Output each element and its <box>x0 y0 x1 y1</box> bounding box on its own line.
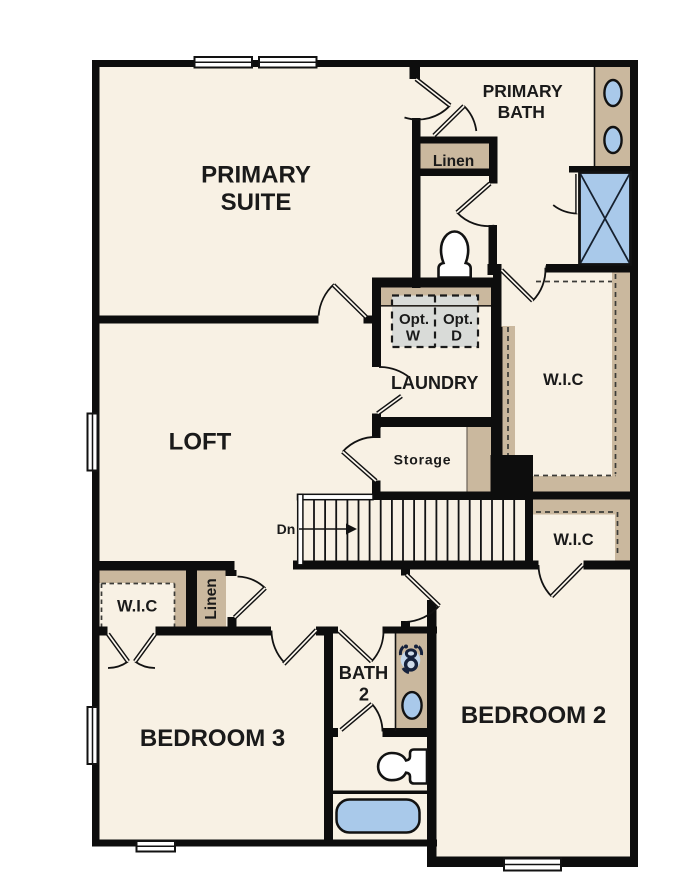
svg-text:BEDROOM 3: BEDROOM 3 <box>140 725 285 752</box>
svg-text:SUITE: SUITE <box>221 189 292 216</box>
svg-text:PRIMARY: PRIMARY <box>201 162 311 189</box>
svg-text:W.I.C: W.I.C <box>117 598 157 616</box>
svg-text:D: D <box>451 328 462 345</box>
svg-text:Linen: Linen <box>203 578 220 619</box>
svg-text:W.I.C: W.I.C <box>543 371 583 389</box>
svg-text:PRIMARY: PRIMARY <box>483 81 563 101</box>
svg-text:LAUNDRY: LAUNDRY <box>391 373 478 393</box>
svg-text:2: 2 <box>359 683 369 704</box>
svg-text:BEDROOM 2: BEDROOM 2 <box>461 702 606 729</box>
svg-text:W: W <box>406 328 421 345</box>
svg-text:Storage: Storage <box>394 452 452 468</box>
svg-text:Linen: Linen <box>433 153 474 170</box>
svg-text:BATH: BATH <box>339 662 388 683</box>
svg-text:Dn: Dn <box>277 521 296 537</box>
svg-text:Opt.: Opt. <box>399 311 429 328</box>
svg-text:LOFT: LOFT <box>169 429 232 456</box>
svg-text:W.I.C: W.I.C <box>553 531 593 549</box>
svg-text:Opt.: Opt. <box>443 311 473 328</box>
svg-text:BATH: BATH <box>498 102 545 122</box>
